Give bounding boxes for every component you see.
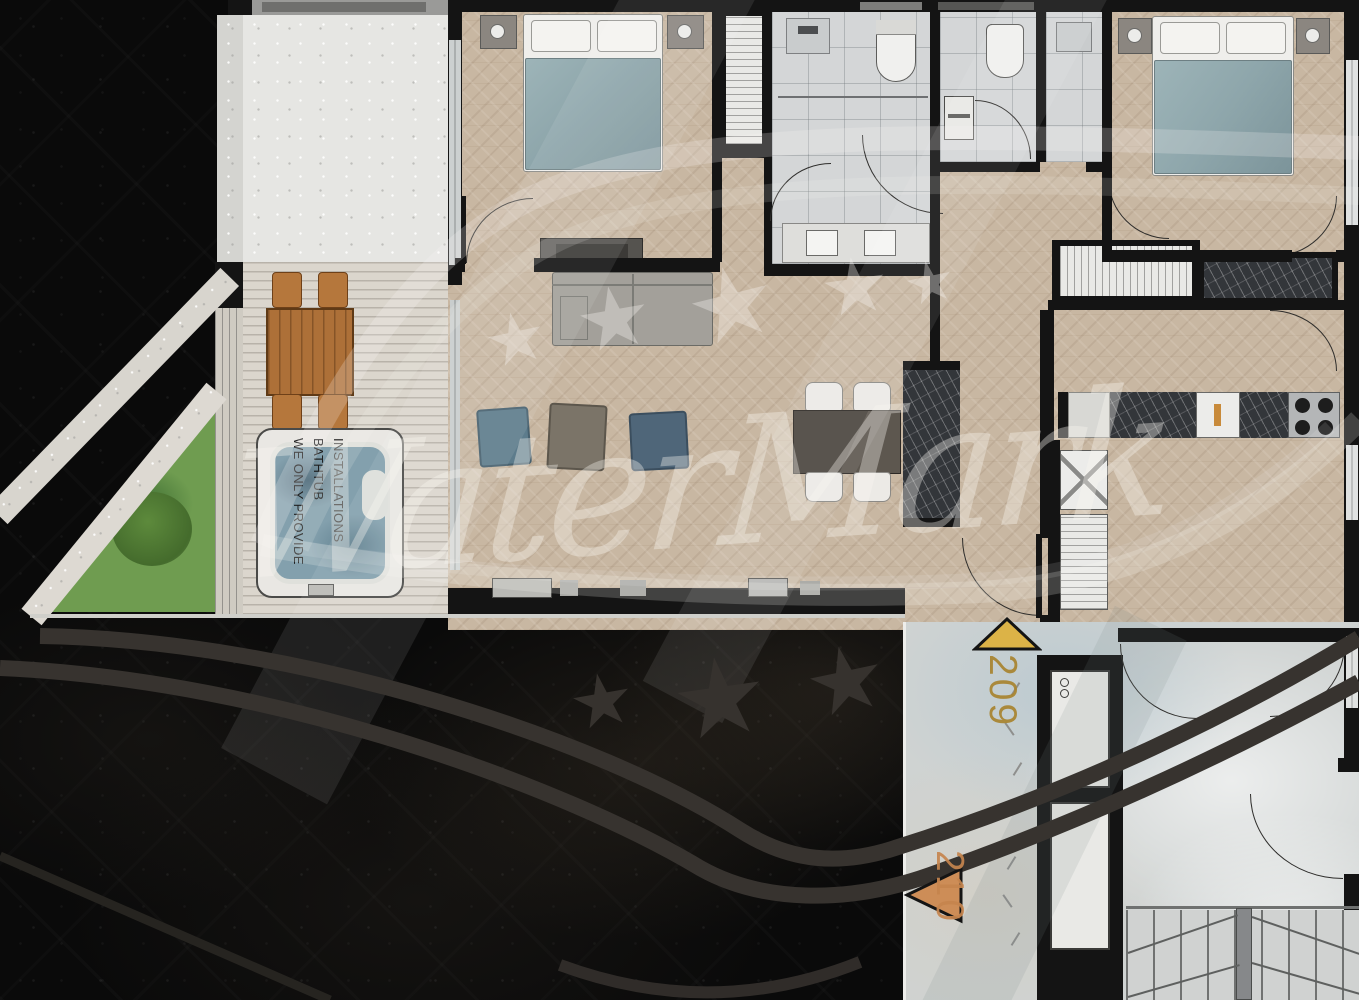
unit-marker-label: 210 (927, 850, 971, 924)
arrow-up-triangle (975, 619, 1039, 649)
unit-marker-209[interactable]: 209 (972, 616, 1042, 657)
site-boundary-line (30, 614, 905, 618)
arrow-up-icon (972, 616, 1042, 652)
floorplan-canvas: WE ONLY PROVIDE BATHTUB INSTALLATIONS (0, 0, 1359, 1000)
unit-marker-label: 209 (980, 654, 1024, 728)
